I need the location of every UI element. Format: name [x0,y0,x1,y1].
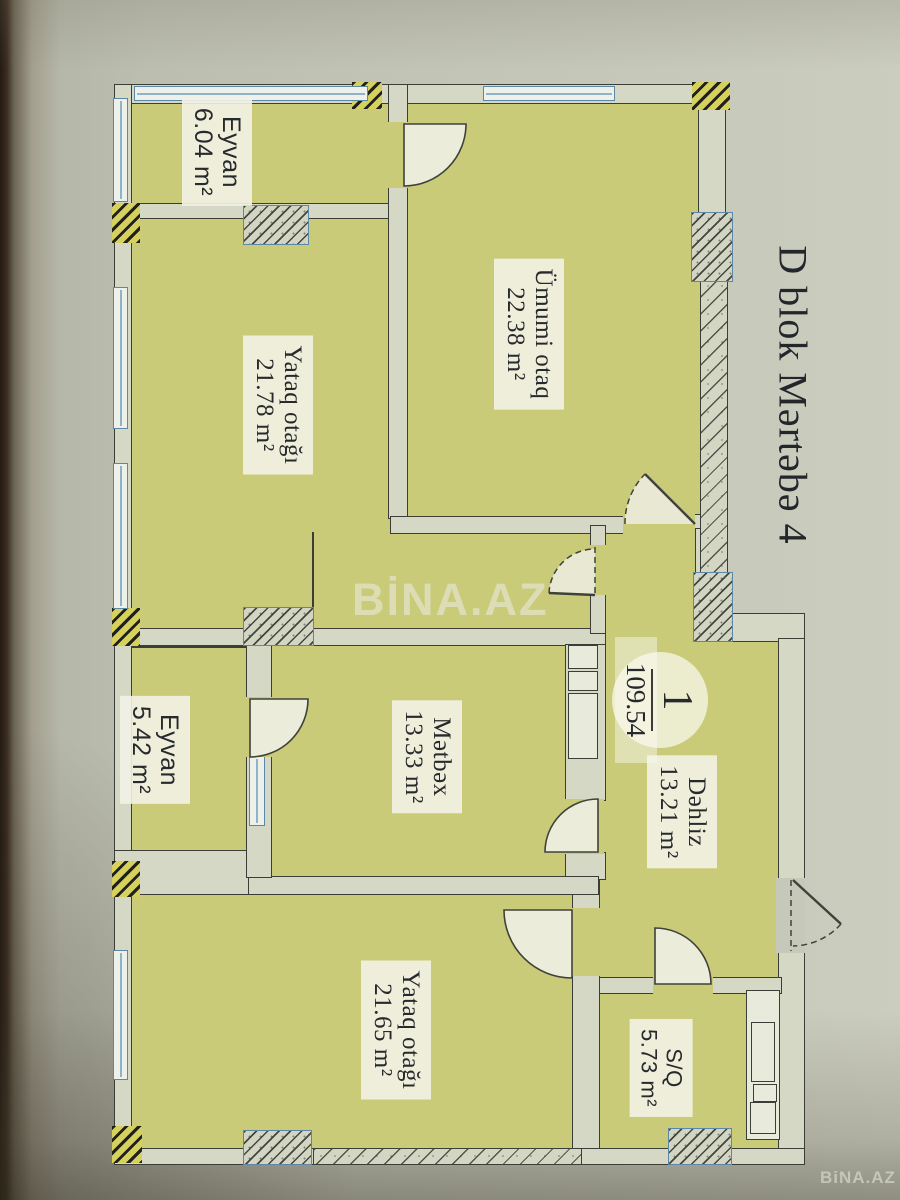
room-name: Eyvan [155,706,183,794]
room-area: 13.21 m² [654,765,682,858]
door-arc [250,699,308,757]
door-arc [404,124,466,186]
door-leaf [793,880,841,924]
room-label-yataq-otagi-top: Yataq otağı 21.78 m² [243,336,313,475]
room-label-dehliz: Dəhliz 13.21 m² [647,755,717,868]
room-name: Yataq otağı [278,346,306,465]
door-arc [545,799,598,852]
unit-badge-divider [651,669,653,731]
plan-title: D blok Mərtəbə 4 [770,245,817,544]
room-label-eyvan-top: Eyvan 6.04 m² [182,98,252,206]
room-area: 21.78 m² [250,346,278,465]
room-area: 13.33 m² [399,710,427,803]
unit-badge-circle: 1 109.54 [612,652,708,748]
door-arc [504,910,572,978]
room-name: Eyvan [217,108,245,196]
room-name: Dəhliz [682,765,710,858]
room-name: Ümumi otaq [529,269,557,400]
door-arc [625,474,695,524]
room-label-sq: S/Q 5.73 m² [629,1019,692,1117]
floor-plan-photo: Eyvan 6.04 m² Ümumi otaq 22.38 m² Yataq … [0,0,900,1200]
room-label-umumi-otaq: Ümumi otaq 22.38 m² [494,259,564,410]
door-arc [655,928,711,984]
room-name: S/Q [661,1029,686,1107]
room-name: Yataq otağı [396,971,424,1090]
room-label-eyvan-mid: Eyvan 5.42 m² [120,696,190,804]
unit-badge: 1 109.54 [607,639,713,761]
room-area: 22.38 m² [501,269,529,400]
room-name: Mətbəx [427,710,455,803]
room-label-metbex: Mətbəx 13.33 m² [392,700,462,813]
unit-number: 1 [656,690,698,711]
room-label-yataq-otagi-bottom: Yataq otağı 21.65 m² [361,961,431,1100]
door-swing-dashed [793,924,841,946]
watermark-corner: BiNA.AZ [820,1168,896,1188]
room-area: 5.42 m² [127,706,155,794]
watermark-center: BİNA.AZ [352,574,548,626]
room-area: 5.73 m² [636,1029,661,1107]
room-area: 21.65 m² [368,971,396,1090]
room-area: 6.04 m² [189,108,217,196]
unit-total-area: 109.54 [622,663,649,737]
